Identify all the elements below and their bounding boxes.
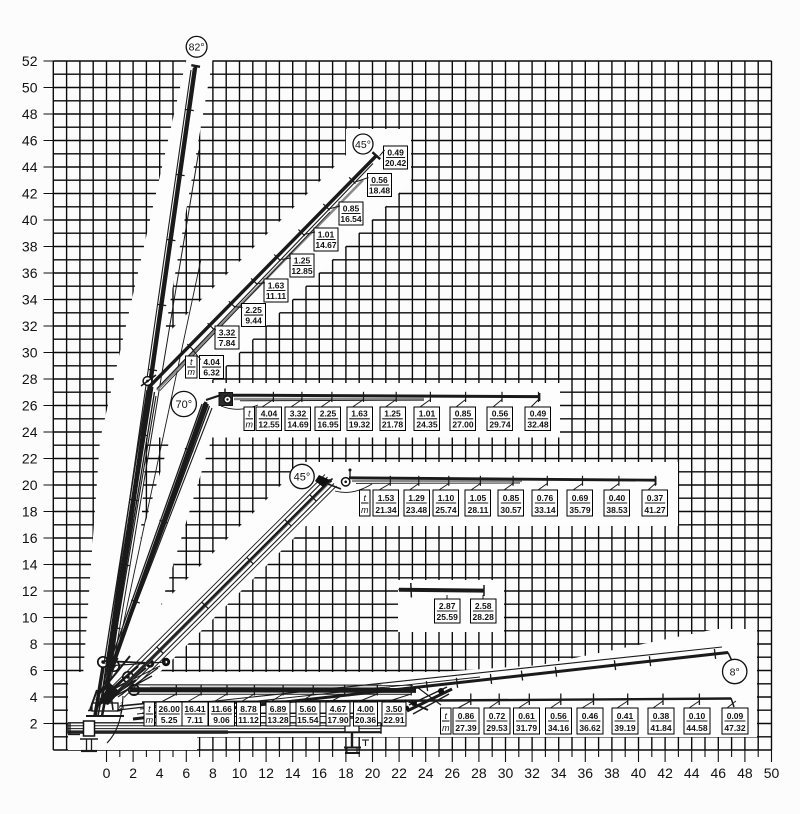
svg-text:23.48: 23.48: [406, 505, 428, 515]
svg-text:30: 30: [498, 765, 514, 781]
svg-text:9.44: 9.44: [245, 315, 262, 325]
svg-text:35.79: 35.79: [569, 505, 591, 515]
svg-text:52: 52: [22, 53, 38, 69]
svg-text:8.78: 8.78: [240, 704, 257, 714]
svg-text:0.69: 0.69: [572, 493, 589, 503]
svg-text:21.78: 21.78: [382, 419, 404, 429]
svg-text:36: 36: [578, 765, 594, 781]
svg-text:16.95: 16.95: [317, 419, 339, 429]
svg-text:0.85: 0.85: [503, 493, 520, 503]
svg-text:4.67: 4.67: [330, 704, 347, 714]
svg-text:m: m: [361, 505, 369, 515]
svg-text:8: 8: [30, 636, 38, 652]
svg-text:3.50: 3.50: [386, 704, 403, 714]
svg-text:24: 24: [22, 424, 38, 440]
svg-text:6: 6: [30, 663, 38, 679]
svg-text:1.25: 1.25: [294, 255, 311, 265]
svg-text:41.84: 41.84: [650, 723, 672, 733]
svg-text:0.37: 0.37: [647, 493, 664, 503]
svg-text:44: 44: [22, 159, 38, 175]
svg-text:18: 18: [22, 504, 38, 520]
svg-text:44.58: 44.58: [686, 723, 708, 733]
svg-text:0.86: 0.86: [458, 711, 475, 721]
svg-text:22.91: 22.91: [383, 715, 405, 725]
svg-text:6: 6: [182, 765, 190, 781]
svg-text:32.48: 32.48: [527, 419, 549, 429]
svg-text:29.53: 29.53: [486, 723, 508, 733]
svg-text:3.32: 3.32: [290, 409, 307, 419]
svg-text:1.05: 1.05: [470, 493, 487, 503]
svg-text:32: 32: [22, 318, 38, 334]
svg-text:4.04: 4.04: [261, 409, 278, 419]
svg-text:0.56: 0.56: [371, 175, 388, 185]
svg-text:46: 46: [22, 133, 38, 149]
svg-text:31.79: 31.79: [516, 723, 538, 733]
svg-text:70°: 70°: [175, 399, 192, 411]
svg-text:8: 8: [209, 765, 217, 781]
svg-text:45°: 45°: [294, 472, 311, 484]
svg-text:7.84: 7.84: [219, 338, 236, 348]
svg-text:46: 46: [711, 765, 727, 781]
svg-text:0.40: 0.40: [609, 493, 626, 503]
svg-text:8°: 8°: [730, 666, 740, 678]
svg-text:6.32: 6.32: [203, 367, 220, 377]
svg-text:0.49: 0.49: [530, 409, 547, 419]
svg-text:47.32: 47.32: [724, 723, 746, 733]
svg-text:18: 18: [338, 765, 354, 781]
svg-text:4.04: 4.04: [203, 357, 220, 367]
svg-text:1.29: 1.29: [408, 493, 425, 503]
svg-text:24: 24: [418, 765, 434, 781]
svg-text:32: 32: [524, 765, 540, 781]
svg-text:16.41: 16.41: [184, 704, 206, 714]
svg-text:7.11: 7.11: [187, 715, 203, 725]
svg-text:33.14: 33.14: [534, 505, 556, 515]
svg-text:30: 30: [22, 345, 38, 361]
svg-text:2.25: 2.25: [320, 409, 337, 419]
svg-text:6.89: 6.89: [270, 704, 287, 714]
svg-text:2.25: 2.25: [245, 305, 262, 315]
svg-text:10: 10: [22, 610, 38, 626]
svg-text:0: 0: [103, 765, 111, 781]
svg-text:20.36: 20.36: [355, 715, 377, 725]
svg-text:20: 20: [365, 765, 381, 781]
svg-text:28: 28: [471, 765, 487, 781]
svg-text:14: 14: [22, 557, 38, 573]
svg-text:1.01: 1.01: [419, 409, 436, 419]
svg-text:20: 20: [22, 477, 38, 493]
svg-text:26: 26: [22, 398, 38, 414]
svg-text:26: 26: [445, 765, 461, 781]
svg-text:12.55: 12.55: [258, 419, 280, 429]
svg-text:0.85: 0.85: [455, 409, 472, 419]
svg-text:25.74: 25.74: [435, 505, 457, 515]
svg-text:28: 28: [22, 371, 38, 387]
svg-text:25.59: 25.59: [437, 612, 459, 622]
svg-text:16.54: 16.54: [340, 214, 362, 224]
svg-text:1.63: 1.63: [268, 280, 285, 290]
svg-text:38: 38: [604, 765, 620, 781]
svg-text:20.42: 20.42: [385, 158, 407, 168]
svg-text:16: 16: [312, 765, 328, 781]
svg-text:1.53: 1.53: [378, 493, 395, 503]
svg-text:34: 34: [22, 292, 38, 308]
svg-text:0.38: 0.38: [653, 711, 670, 721]
svg-text:m: m: [442, 723, 450, 733]
svg-text:4.00: 4.00: [357, 704, 374, 714]
svg-text:18.48: 18.48: [369, 185, 391, 195]
svg-text:22: 22: [22, 451, 38, 467]
svg-text:82°: 82°: [189, 42, 205, 54]
svg-text:27.39: 27.39: [455, 723, 477, 733]
svg-text:0.56: 0.56: [492, 409, 509, 419]
svg-text:34: 34: [551, 765, 567, 781]
svg-text:0.72: 0.72: [489, 711, 506, 721]
svg-text:4: 4: [30, 689, 38, 705]
svg-text:22: 22: [391, 765, 407, 781]
svg-text:0.76: 0.76: [537, 493, 554, 503]
svg-text:5.25: 5.25: [161, 715, 178, 725]
svg-text:40: 40: [631, 765, 647, 781]
svg-text:39.19: 39.19: [614, 723, 636, 733]
svg-text:50: 50: [22, 80, 38, 96]
svg-text:1.01: 1.01: [318, 229, 335, 239]
svg-text:36: 36: [22, 265, 38, 281]
svg-text:0.85: 0.85: [343, 203, 360, 213]
svg-text:2: 2: [129, 765, 137, 781]
svg-text:13.28: 13.28: [267, 715, 289, 725]
svg-text:4: 4: [156, 765, 164, 781]
svg-text:27.00: 27.00: [452, 419, 474, 429]
svg-text:0.49: 0.49: [387, 147, 404, 157]
svg-text:1.63: 1.63: [351, 409, 368, 419]
svg-text:2: 2: [30, 716, 38, 732]
svg-text:42: 42: [22, 186, 38, 202]
svg-text:2.87: 2.87: [439, 601, 456, 611]
svg-text:14: 14: [285, 765, 301, 781]
svg-text:0.56: 0.56: [550, 711, 567, 721]
svg-text:48: 48: [737, 765, 753, 781]
svg-text:11.66: 11.66: [211, 704, 232, 714]
svg-text:m: m: [245, 419, 253, 429]
svg-text:40: 40: [22, 212, 38, 228]
svg-text:12: 12: [22, 583, 38, 599]
svg-text:26.00: 26.00: [159, 704, 181, 714]
svg-text:24.35: 24.35: [416, 419, 438, 429]
svg-text:0.09: 0.09: [727, 711, 744, 721]
svg-text:44: 44: [684, 765, 700, 781]
svg-text:11.12: 11.12: [238, 715, 259, 725]
svg-text:9.06: 9.06: [213, 715, 230, 725]
svg-text:48: 48: [22, 106, 38, 122]
svg-text:m: m: [188, 367, 196, 377]
svg-text:0.46: 0.46: [582, 711, 599, 721]
svg-text:29.74: 29.74: [489, 419, 511, 429]
svg-text:19.32: 19.32: [349, 419, 371, 429]
svg-text:41.27: 41.27: [644, 505, 666, 515]
svg-text:0.61: 0.61: [518, 711, 535, 721]
svg-text:38.53: 38.53: [606, 505, 628, 515]
svg-text:14.69: 14.69: [287, 419, 309, 429]
svg-text:45°: 45°: [355, 139, 371, 151]
svg-text:21.34: 21.34: [375, 505, 397, 515]
svg-text:28.28: 28.28: [473, 612, 495, 622]
svg-text:16: 16: [22, 530, 38, 546]
svg-text:0.41: 0.41: [617, 711, 634, 721]
svg-text:30.57: 30.57: [500, 505, 522, 515]
svg-text:2.58: 2.58: [475, 601, 492, 611]
svg-text:1.25: 1.25: [384, 409, 401, 419]
svg-text:50: 50: [764, 765, 780, 781]
svg-text:28.11: 28.11: [468, 505, 489, 515]
svg-text:m: m: [146, 715, 154, 725]
svg-text:14.67: 14.67: [315, 240, 337, 250]
svg-text:15.54: 15.54: [297, 715, 319, 725]
svg-text:17.90: 17.90: [327, 715, 349, 725]
svg-text:12.85: 12.85: [291, 266, 313, 276]
svg-text:0.10: 0.10: [689, 711, 706, 721]
svg-text:42: 42: [657, 765, 673, 781]
svg-text:1.10: 1.10: [438, 493, 455, 503]
svg-text:34.16: 34.16: [548, 723, 570, 733]
svg-text:11.11: 11.11: [266, 291, 287, 301]
svg-text:10: 10: [232, 765, 248, 781]
svg-text:12: 12: [258, 765, 274, 781]
svg-text:3.32: 3.32: [219, 327, 236, 337]
svg-text:5.60: 5.60: [300, 704, 317, 714]
svg-text:36.62: 36.62: [579, 723, 601, 733]
svg-text:38: 38: [22, 239, 38, 255]
